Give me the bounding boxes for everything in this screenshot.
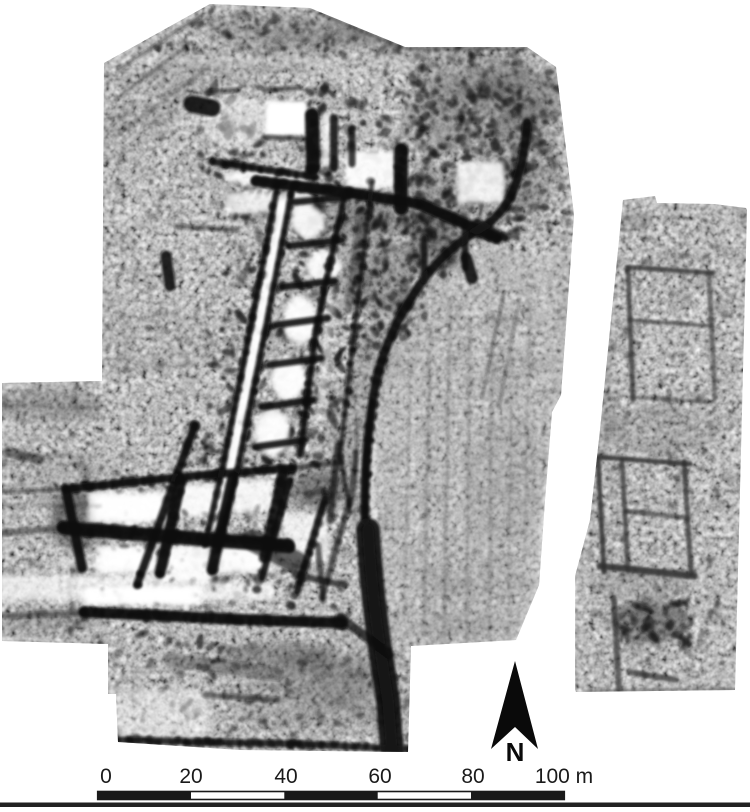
svg-text:40: 40 [274,765,297,788]
svg-text:100 m: 100 m [535,765,593,788]
svg-text:60: 60 [368,765,391,788]
svg-text:N: N [506,737,525,767]
svg-text:0: 0 [100,765,112,788]
svg-text:20: 20 [179,765,202,788]
svg-text:80: 80 [461,765,484,788]
